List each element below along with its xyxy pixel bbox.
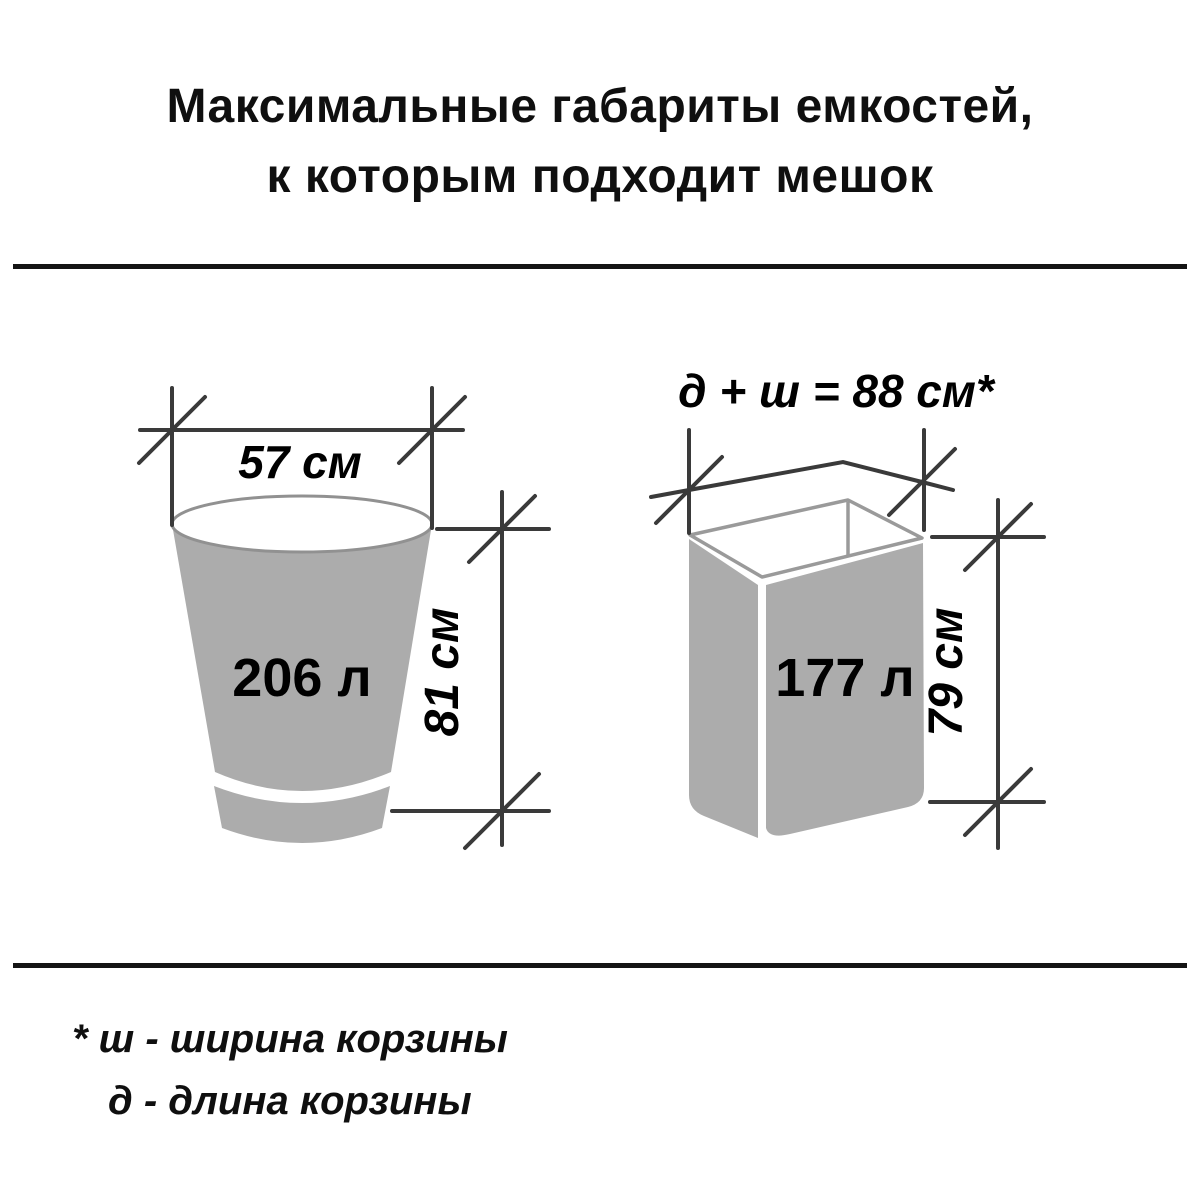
basket-figure: 177 л [689,500,924,838]
footnote-line-1: * ш - ширина корзины [72,1008,508,1070]
bucket-rim-ellipse [172,496,432,552]
infographic-page: Максимальные габариты емкостей, к которы… [0,0,1200,1200]
footnote-line-2: д - длина корзины [72,1070,508,1132]
basket-left-face [689,539,758,838]
footnote: * ш - ширина корзины д - длина корзины [72,1008,508,1132]
bucket-width-label: 57 см [238,436,362,488]
divider-bottom [13,963,1187,968]
bucket-figure: 206 л [172,496,432,843]
bucket-volume-label: 206 л [232,648,371,708]
basket-height-label: 79 см [920,608,973,737]
basket-volume-label: 177 л [775,648,914,708]
basket-top-label: д + ш = 88 см* [678,365,996,417]
dimension-line [651,462,953,497]
bucket-height-label: 81 см [416,608,469,737]
bucket-base [214,786,390,843]
